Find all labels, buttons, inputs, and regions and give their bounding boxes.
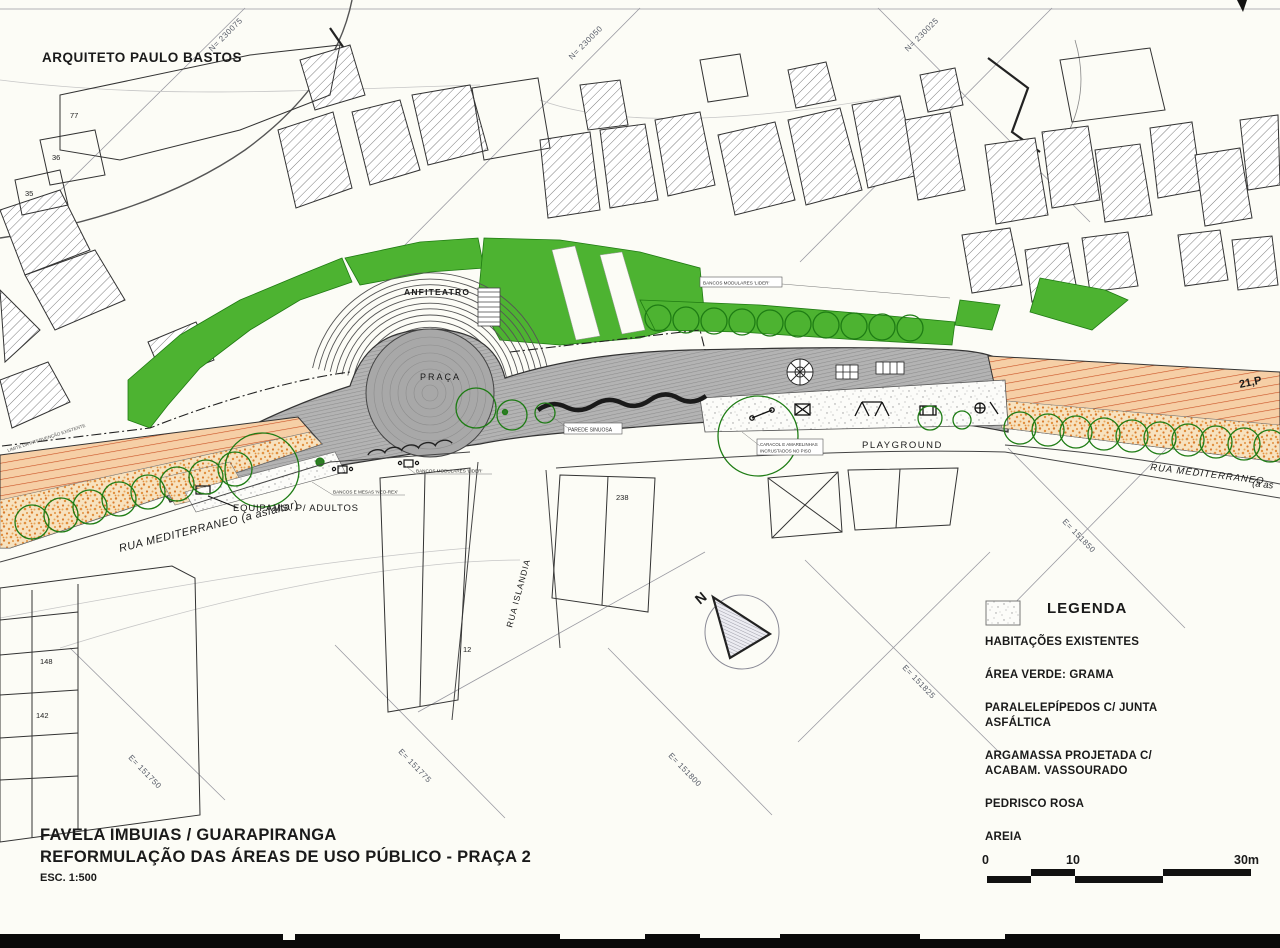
coord-n-230050: N= 230050 — [567, 24, 604, 61]
legend: LEGENDA HABITAÇÕES EXISTENTES ÁREA VERDE… — [985, 600, 1277, 859]
legend-label: ARGAMASSA PROJETADA C/ ACABAM. VASSOURAD… — [985, 745, 1190, 779]
rua-mediterraneo-right-suffix: (a as — [1252, 478, 1275, 492]
legend-item-areia: AREIA — [985, 826, 1277, 845]
legend-label: PARALELEPÍPEDOS C/ JUNTA ASFÁLTICA — [985, 697, 1190, 731]
rua-mediterraneo-right-label: RUA MEDITERRANEO — [1150, 462, 1265, 487]
legend-item-habitacoes: HABITAÇÕES EXISTENTES — [985, 631, 1277, 650]
caracol-label-2: INCRUSTADOS NO PISO — [760, 449, 812, 454]
house-number-36: 36 — [52, 153, 60, 162]
house-number-35: 35 — [25, 189, 33, 198]
project-title-line2: REFORMULAÇÃO DAS ÁREAS DE USO PÚBLICO - … — [40, 846, 531, 868]
project-title-line1: FAVELA IMBUIAS / GUARAPIRANGA — [40, 824, 531, 846]
amphitheatre-stair — [478, 288, 500, 326]
coord-e-151850: E= 151850 — [1061, 517, 1098, 555]
bancos-modulares-mid-label: BANCOS MODULARES 'LIDER' — [416, 469, 482, 474]
house-number-142: 142 — [36, 711, 49, 720]
north-arrow-icon — [705, 595, 779, 669]
coord-n-230025: N= 230025 — [903, 16, 940, 53]
legend-item-pedrisco: PEDRISCO ROSA — [985, 793, 1277, 812]
rua-islandia-label: RUA ISLANDIA — [504, 558, 532, 629]
parede-sinuosa-label: PAREDE SINUOSA — [568, 428, 613, 434]
house-number-148: 148 — [40, 657, 53, 666]
legend-label: ÁREA VERDE: GRAMA — [985, 664, 1190, 683]
legend-item-argamassa: ARGAMASSA PROJETADA C/ ACABAM. VASSOURAD… — [985, 745, 1277, 779]
praca-label: PRAÇA — [420, 372, 461, 382]
coord-n-230075: N= 230075 — [207, 16, 244, 53]
bancos-mesas-label: BANCOS E MESAS 'NEO-REX' — [333, 490, 398, 495]
lower-buildings — [0, 468, 958, 842]
coord-e-151775: E= 151775 — [397, 747, 434, 785]
site-plan-sheet: ARQUITETO PAULO BASTOS ANFITEATRO PRAÇA … — [0, 0, 1280, 948]
legend-label: AREIA — [985, 826, 1190, 845]
caracol-label-1: CARACOL E AMARELINHAS — [760, 442, 818, 447]
project-scale: ESC. 1:500 — [40, 872, 531, 884]
house-number-238: 238 — [616, 493, 629, 502]
bancos-modulares-top-label: BANCOS MODULARES 'LIDER' — [703, 281, 769, 286]
legend-label: PEDRISCO ROSA — [985, 793, 1190, 812]
house-number-12: 12 — [463, 645, 471, 654]
scale-bar — [987, 869, 1251, 883]
title-block: FAVELA IMBUIAS / GUARAPIRANGA REFORMULAÇ… — [40, 824, 531, 884]
plaza-dome — [366, 329, 494, 457]
north-label: N — [692, 589, 710, 608]
caracol-mosaic-icon — [787, 359, 813, 385]
legend-item-paralelepipedos: PARALELEPÍPEDOS C/ JUNTA ASFÁLTICA — [985, 697, 1277, 731]
coord-e-151800: E= 151800 — [667, 751, 704, 789]
legend-item-area-verde: ÁREA VERDE: GRAMA — [985, 664, 1277, 683]
legend-label: HABITAÇÕES EXISTENTES — [985, 631, 1190, 650]
coord-e-151825: E= 151825 — [901, 663, 938, 701]
legend-swatch-areia — [985, 600, 1021, 626]
anfiteatro-label: ANFITEATRO — [404, 287, 470, 297]
coord-e-151750: E= 151750 — [127, 753, 164, 791]
playground-label: PLAYGROUND — [862, 440, 943, 451]
legend-title: LEGENDA — [1047, 600, 1277, 617]
house-number-77: 77 — [70, 111, 78, 120]
